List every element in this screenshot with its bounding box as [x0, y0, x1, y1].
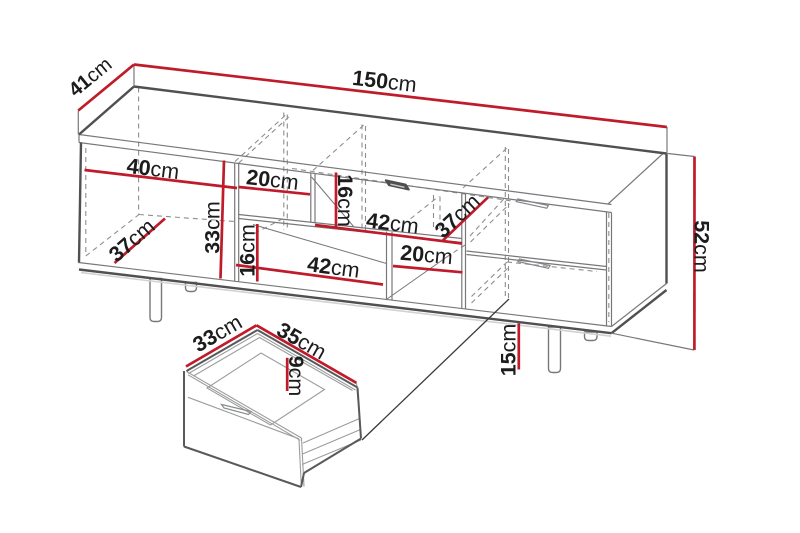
svg-text:15cm: 15cm [497, 324, 521, 377]
svg-text:20cm: 20cm [399, 241, 453, 269]
svg-text:9cm: 9cm [284, 356, 308, 397]
svg-text:16cm: 16cm [236, 224, 260, 277]
svg-text:52cm: 52cm [690, 220, 714, 273]
svg-text:16cm: 16cm [333, 174, 357, 227]
svg-text:33cm: 33cm [201, 201, 225, 254]
